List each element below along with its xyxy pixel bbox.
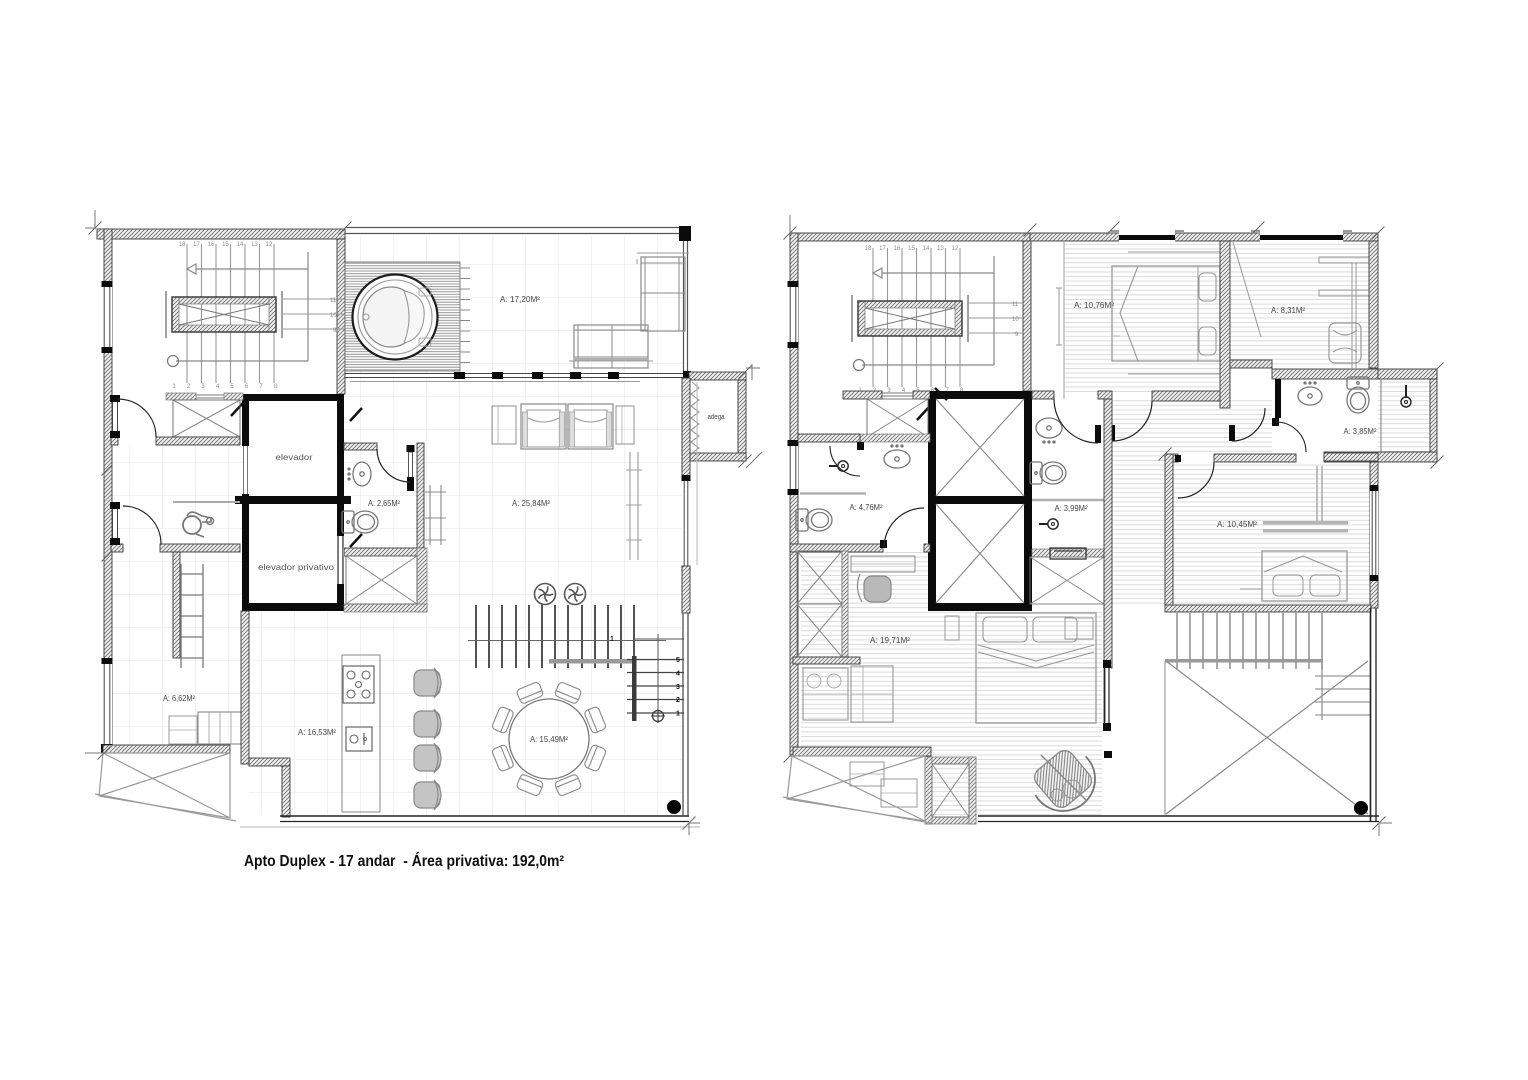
svg-text:A: 16,53M²: A: 16,53M² xyxy=(298,728,336,737)
svg-text:A: 2,65M²: A: 2,65M² xyxy=(368,499,400,508)
svg-text:A: 19,71M²: A: 19,71M² xyxy=(870,636,910,645)
svg-text:A: 6,62M²: A: 6,62M² xyxy=(163,694,195,703)
svg-text:12: 12 xyxy=(952,246,959,252)
svg-text:elevador privativo: elevador privativo xyxy=(258,562,334,572)
svg-text:A: 10,45M²: A: 10,45M² xyxy=(1217,520,1257,529)
svg-text:A: 15,49M²: A: 15,49M² xyxy=(530,735,568,744)
svg-text:16: 16 xyxy=(208,242,215,248)
svg-text:17: 17 xyxy=(879,246,886,252)
svg-text:10: 10 xyxy=(1012,317,1019,323)
svg-text:16: 16 xyxy=(894,246,901,252)
svg-text:A: 8,31M²: A: 8,31M² xyxy=(1271,306,1305,315)
svg-text:15: 15 xyxy=(908,246,915,252)
svg-text:12: 12 xyxy=(266,242,273,248)
svg-text:elevador: elevador xyxy=(276,452,313,462)
svg-text:3: 3 xyxy=(676,684,680,691)
svg-text:A: 3,99M²: A: 3,99M² xyxy=(1055,504,1088,513)
svg-text:14: 14 xyxy=(237,242,244,248)
svg-text:10: 10 xyxy=(330,313,337,319)
svg-text:18: 18 xyxy=(179,242,186,248)
svg-text:13: 13 xyxy=(937,246,944,252)
svg-text:Apto Duplex - 17 andar - Área: Apto Duplex - 17 andar - Área privativa:… xyxy=(244,853,564,870)
svg-text:1: 1 xyxy=(610,636,614,643)
svg-text:17: 17 xyxy=(193,242,200,248)
svg-text:18: 18 xyxy=(865,246,872,252)
svg-text:15: 15 xyxy=(222,242,229,248)
svg-text:A: 10,76M²: A: 10,76M² xyxy=(1074,301,1114,310)
svg-text:A: 25,84M²: A: 25,84M² xyxy=(512,499,550,508)
svg-text:4: 4 xyxy=(676,670,680,677)
svg-text:11: 11 xyxy=(1012,302,1019,308)
svg-text:adega: adega xyxy=(708,414,725,421)
svg-text:2: 2 xyxy=(676,697,680,704)
svg-text:A: 4,76M²: A: 4,76M² xyxy=(850,503,883,512)
svg-text:5: 5 xyxy=(676,657,680,664)
svg-text:11: 11 xyxy=(330,298,337,304)
svg-text:14: 14 xyxy=(923,246,930,252)
svg-text:A: 17,20M²: A: 17,20M² xyxy=(500,295,540,304)
svg-text:A: 3,85M²: A: 3,85M² xyxy=(1344,427,1377,436)
svg-text:13: 13 xyxy=(251,242,258,248)
svg-text:1: 1 xyxy=(676,711,680,718)
